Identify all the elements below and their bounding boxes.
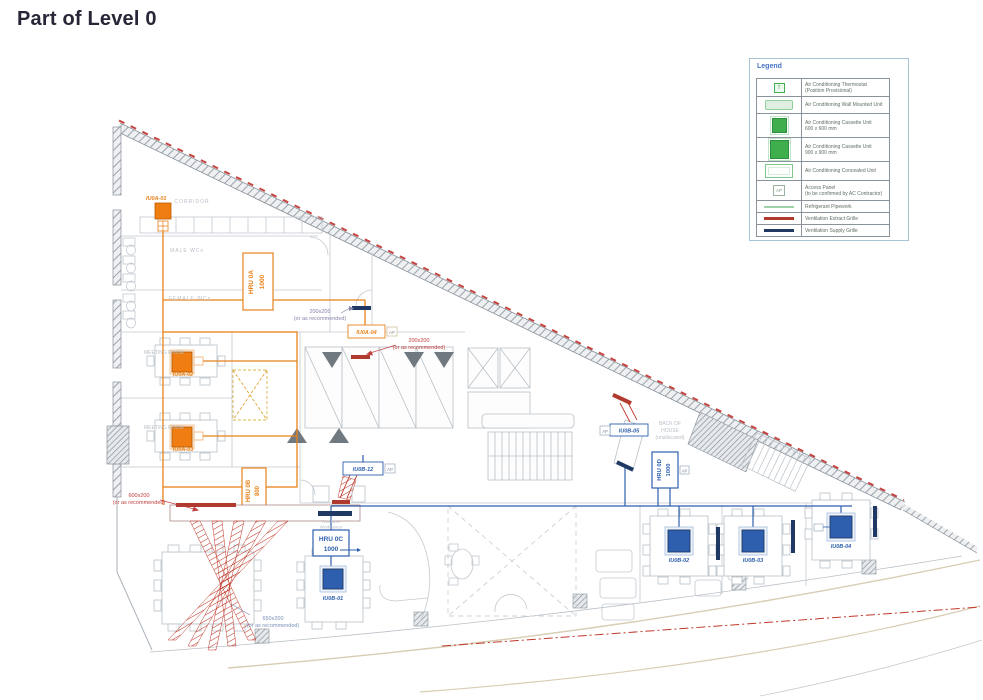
room-label-corridor: CORRIDOR (174, 199, 209, 205)
label-iu0b12: IU0B-12 (353, 467, 373, 473)
room-label-boh: BACK OF (659, 421, 681, 427)
stair-core (305, 347, 574, 480)
svg-text:200x200: 200x200 (408, 338, 429, 344)
label-hru0a: HRU 0A (248, 270, 255, 295)
concealed-unit-icon (765, 164, 793, 178)
hru-0d: HRU 0D 1000 AP (652, 452, 689, 488)
cassette-iu0b03 (739, 527, 767, 555)
legend-label: Air Conditioning Concealed Unit (805, 168, 886, 174)
label-hru0b-size: 800 (255, 485, 261, 496)
label-hru0a-size: 1000 (259, 274, 266, 289)
ap-tag: AP (387, 467, 393, 472)
legend-row-thermostat: T Air Conditioning Thermostat(Position P… (757, 79, 889, 96)
hru-0a: HRU 0A 1000 (243, 253, 273, 310)
annotation-200x200-supply: 200x200 (or as recommended) (294, 306, 354, 322)
label-iu0b02: IU0B-02 (669, 558, 689, 564)
label-iu0b03: IU0B-03 (743, 558, 763, 564)
legend-row-cassette-600: Air Conditioning Cassette Unit600 x 600 … (757, 113, 889, 137)
svg-text:(or as recommended): (or as recommended) (393, 345, 446, 351)
room-note: Available (322, 519, 341, 524)
legend-label: Ventilation Supply Grille (805, 228, 886, 234)
room-note: Workspace (320, 525, 343, 530)
svg-text:600x200: 600x200 (128, 493, 149, 499)
meeting-tables-right (297, 493, 878, 629)
label-hru0c-size: 1000 (324, 546, 339, 553)
service-riser (233, 370, 267, 420)
cassette-unit-600-icon (772, 118, 787, 133)
property-line (442, 607, 980, 646)
room-label-male-wc: MALE WCs (170, 248, 204, 254)
unit-iu0a04: IU0A-04 AP (348, 325, 397, 338)
legend-title: Legend (757, 63, 782, 70)
cassette-iu0b02 (665, 527, 693, 555)
wall-mounted-unit-icon (765, 100, 793, 110)
legend: Legend T Air Conditioning Thermostat(Pos… (749, 58, 909, 241)
label-iu0a02: IU0A-02 (173, 372, 193, 378)
legend-row-wall-unit: Air Conditioning Wall Mounted Unit (757, 96, 889, 113)
legend-row-refrigerant: Refrigerant Pipework (757, 200, 889, 212)
label-hru0d-size: 1000 (666, 464, 672, 477)
refrigerant-pipework-icon (764, 206, 794, 208)
legend-row-concealed: Air Conditioning Concealed Unit (757, 161, 889, 180)
label-iu0a04: IU0A-04 (356, 330, 376, 336)
unit-iu0b05: IU0B-05 AP (600, 393, 648, 472)
label-iu0a01: IU0A-01 (146, 196, 166, 202)
legend-label: Air Conditioning Wall Mounted Unit (805, 102, 886, 108)
legend-row-cassette-900: Air Conditioning Cassette Unit900 x 900 … (757, 137, 889, 161)
legend-row-extract-grille: Ventilation Extract Grille (757, 212, 889, 224)
legend-label: Ventilation Extract Grille (805, 216, 886, 222)
room-label-boh: (unallocated) (656, 435, 685, 441)
supply-grille (352, 306, 371, 310)
svg-text:(or as recommended): (or as recommended) (294, 316, 347, 322)
wc-fixtures (123, 238, 136, 328)
extract-grille (351, 355, 370, 359)
room-label-meeting-1: MEETING ROOM (144, 350, 184, 356)
label-hru0d: HRU 0D (657, 459, 663, 481)
label-iu0b04: IU0B-04 (831, 544, 851, 550)
ap-tag: AP (682, 469, 688, 474)
legend-label: Refrigerant Pipework (805, 204, 886, 210)
ap-tag: AP (389, 330, 395, 335)
label-hru0b: HRU 0B (246, 479, 252, 502)
drawing-sheet: Part of Level 0 (0, 0, 983, 700)
ap-tag: AP (602, 429, 608, 434)
room-label-boh: HOUSE (661, 428, 679, 434)
unit-iu0b12: IU0B-12 AP (313, 462, 395, 504)
room-label-female-wc: FEMALE WCs (169, 296, 211, 302)
legend-row-access-panel: AP Access Panel(to be confirmed by AC Co… (757, 180, 889, 200)
cassette-unit-900-icon (770, 140, 789, 159)
thermostat-icon: T (774, 83, 785, 93)
atrium-void (448, 506, 576, 616)
legend-row-supply-grille: Ventilation Supply Grille (757, 224, 889, 236)
cassette-iu0b01 (320, 566, 346, 592)
access-panel-icon: AP (773, 185, 785, 196)
label-iu0b05: IU0B-05 (619, 429, 640, 435)
svg-text:650x200: 650x200 (262, 616, 283, 622)
label-iu0a03: IU0A-03 (173, 447, 193, 453)
extract-grille-icon (764, 217, 794, 220)
label-iu0b01: IU0B-01 (323, 596, 343, 602)
room-label-meeting-2: MEETING ROOM (144, 425, 184, 431)
supply-grille-icon (764, 229, 794, 232)
svg-text:(or as recommended): (or as recommended) (113, 500, 166, 506)
label-hru0c: HRU 0C (319, 536, 344, 543)
svg-text:(or as recommended): (or as recommended) (247, 623, 300, 629)
svg-text:200x200: 200x200 (309, 309, 330, 315)
legend-table: T Air Conditioning Thermostat(Position P… (756, 78, 890, 237)
thermostat-iu0a01 (155, 203, 171, 231)
